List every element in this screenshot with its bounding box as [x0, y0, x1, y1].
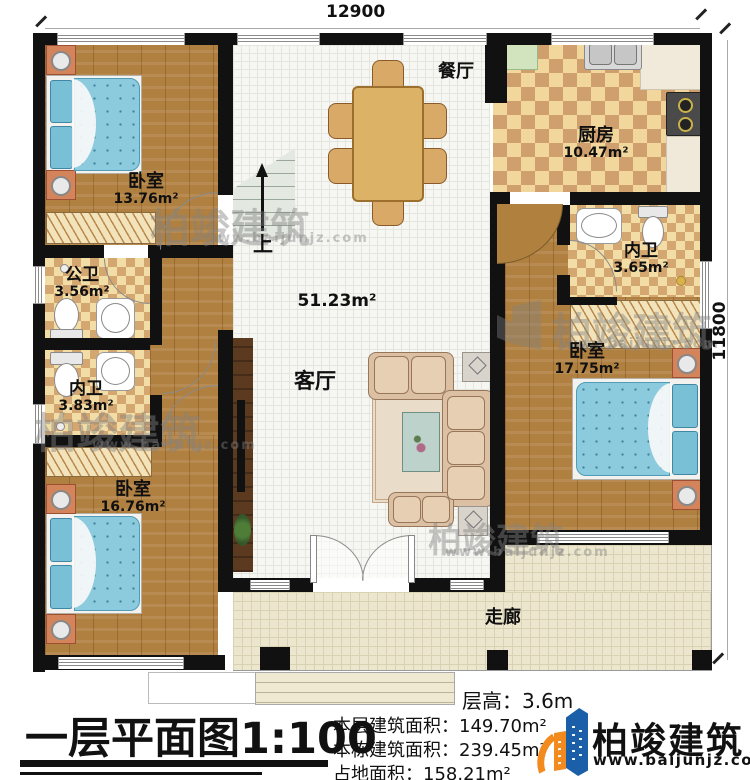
pillar: [692, 650, 712, 670]
logo-block-orange: [554, 731, 566, 771]
wall: [218, 330, 233, 592]
stat-value: 158.21m²: [423, 764, 511, 780]
stat-floor-area: 本层建筑面积：149.70m²: [333, 712, 547, 738]
brand-website: www.baijunjz.com: [593, 751, 750, 769]
sofa-cushion: [411, 356, 446, 394]
window: [237, 33, 320, 45]
room-label-ensuite-right: 内卫 3.65m²: [613, 242, 668, 277]
pillar: [487, 650, 508, 670]
dimension-top: 12900: [326, 2, 385, 22]
stat-label: 本栋建筑面积：: [333, 740, 459, 761]
wall: [33, 33, 45, 672]
dining-chair: [372, 60, 404, 88]
room-name: 厨房: [563, 126, 628, 146]
wall: [570, 192, 712, 205]
plan-title-text: 一层平面图: [25, 714, 240, 764]
toilet: [54, 298, 79, 332]
window: [57, 33, 185, 45]
plant: [234, 514, 251, 546]
room-area: 13.76m²: [113, 192, 178, 208]
wardrobe: [46, 212, 156, 244]
room-label-bedroom-top-left: 卧室 13.76m²: [113, 172, 178, 208]
title-underline-thin: [20, 772, 262, 775]
entry-door-leaf: [310, 535, 317, 583]
entry-door-leaf: [408, 535, 415, 583]
sink: [576, 208, 622, 244]
bed-pillow: [50, 80, 73, 123]
sofa-cushion: [374, 356, 409, 394]
room-area: 17.75m²: [554, 362, 619, 378]
dimension-tick: [35, 15, 47, 27]
nightstand: [672, 480, 702, 510]
room-name: 内卫: [613, 242, 668, 261]
dining-chair: [420, 103, 447, 139]
room-label-kitchen: 厨房 10.47m²: [563, 126, 628, 162]
stat-total-area: 本栋建筑面积：239.45m²: [333, 736, 547, 762]
room-name: 卧室: [100, 480, 165, 500]
stat-label: 本层建筑面积：: [333, 716, 459, 737]
stat-land-area: 占地面积：158.21m²: [333, 760, 511, 780]
bed-pillow: [50, 126, 73, 169]
room-label-public-bathroom: 公卫 3.56m²: [54, 266, 109, 301]
bed-pillow: [672, 384, 698, 428]
wall: [485, 33, 507, 103]
dimension-tick: [712, 652, 724, 664]
bed-pillow: [50, 565, 73, 609]
floor-plan: 12900 11800: [0, 0, 750, 780]
nightstand: [46, 170, 76, 200]
stat-label: 占地面积：: [333, 764, 423, 780]
nightstand: [46, 45, 76, 75]
stat-value: 239.45m²: [459, 740, 547, 761]
dining-chair: [328, 148, 355, 184]
stairs-arrow-head: [256, 163, 268, 177]
room-area: 10.47m²: [563, 146, 628, 162]
room-label-bedroom-bottom-left: 卧室 16.76m²: [100, 480, 165, 516]
stove: [666, 92, 702, 136]
stairs-up-label: 上: [253, 233, 273, 255]
dining-chair: [328, 103, 355, 139]
floor-drain: [676, 276, 686, 286]
brand-website-text: www.baijunjz.com: [593, 751, 750, 769]
corridor-edge: [233, 670, 712, 671]
window: [33, 266, 45, 304]
room-name: 餐厅: [438, 62, 474, 82]
window: [450, 580, 484, 590]
watermark: www.baijunjz.com: [204, 231, 369, 246]
dimension-tick: [719, 22, 731, 34]
stairs-up-text: 上: [253, 232, 273, 256]
brand-logo-icon: [540, 708, 588, 776]
corridor-floor: [233, 592, 712, 670]
dining-table: [352, 86, 424, 202]
logo-block-blue: [566, 708, 588, 776]
room-area: 3.56m²: [54, 285, 109, 301]
room-area: 3.65m²: [613, 261, 668, 277]
room-name: 卧室: [113, 172, 178, 192]
room-name: 客厅: [294, 370, 336, 394]
stat-value: 149.70m²: [459, 716, 547, 737]
nightstand: [46, 484, 76, 514]
room-name: 卧室: [554, 342, 619, 362]
kitchen-counter: [640, 40, 702, 90]
window: [551, 33, 654, 45]
sofa-cushion: [447, 431, 485, 465]
pillar: [260, 647, 290, 670]
room-area: 51.23m²: [298, 292, 377, 311]
room-label-dining: 餐厅: [438, 62, 474, 82]
dining-chair: [420, 148, 447, 184]
dimension-right: 11800: [710, 301, 730, 361]
nightstand: [46, 614, 76, 644]
sofa-cushion: [447, 396, 485, 430]
sofa-cushion: [393, 496, 421, 523]
window: [58, 657, 184, 669]
plan-title: 一层平面图1:100: [25, 704, 377, 766]
sink: [96, 298, 135, 339]
room-name: 走廊: [485, 608, 521, 628]
entry-steps: [255, 672, 455, 705]
room-name: 内卫: [58, 380, 113, 399]
room-label-living: 客厅: [294, 370, 336, 394]
dimension-line-top: [45, 28, 700, 29]
dining-chair: [372, 198, 404, 226]
wall: [33, 245, 104, 258]
watermark-url: www.baijunjz.com: [92, 438, 257, 453]
porch: [148, 672, 257, 704]
coffee-table: [402, 412, 440, 472]
wall: [218, 45, 233, 195]
wall: [33, 338, 150, 350]
room-label-corridor: 走廊: [485, 608, 521, 628]
end-table: [462, 352, 492, 382]
kitchen-counter: [666, 136, 702, 194]
room-name: 公卫: [54, 266, 109, 285]
window: [403, 33, 487, 45]
watermark: www.baijunjz.com: [92, 438, 257, 453]
watermark-url: www.baijunjz.com: [204, 231, 369, 246]
wall: [150, 258, 162, 345]
watermark-url: www.baijunjz.com: [445, 545, 610, 560]
stat-label: 层高：: [462, 689, 522, 713]
room-area: 16.76m²: [100, 500, 165, 516]
watermark: www.baijunjz.com: [445, 545, 610, 560]
bed-pillow: [50, 518, 73, 562]
room-label-ensuite-left: 内卫 3.83m²: [58, 380, 113, 415]
title-underline: [20, 760, 328, 767]
room-label-bedroom-right: 卧室 17.75m²: [554, 342, 619, 378]
dimension-tick: [695, 8, 707, 20]
window: [250, 580, 290, 590]
bed-pillow: [672, 431, 698, 475]
room-area: 3.83m²: [58, 399, 113, 415]
living-area-label: 51.23m²: [298, 292, 377, 311]
sofa-cushion: [447, 466, 485, 500]
